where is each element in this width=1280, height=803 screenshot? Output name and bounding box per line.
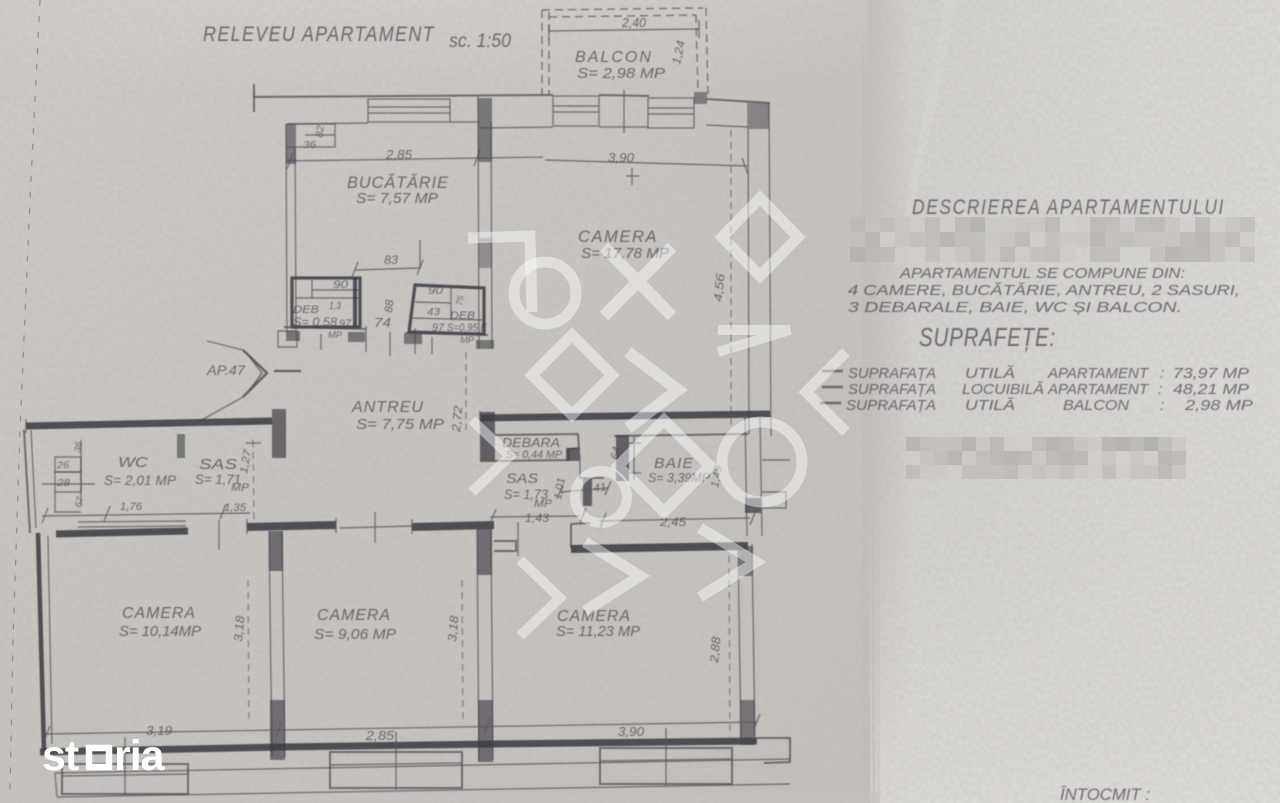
svg-text:SUPRAFAȚA: SUPRAFAȚA xyxy=(848,365,936,382)
svg-text:SUPRAFAȚA: SUPRAFAȚA xyxy=(846,397,936,414)
svg-text:1,43: 1,43 xyxy=(525,511,549,525)
svg-text:83: 83 xyxy=(384,253,398,267)
svg-text:2,98 MP: 2,98 MP xyxy=(1184,397,1253,414)
svg-text:73,97 MP: 73,97 MP xyxy=(1173,365,1249,382)
svg-text:82: 82 xyxy=(314,124,327,138)
svg-text:28: 28 xyxy=(56,478,71,489)
svg-text:43: 43 xyxy=(427,307,441,318)
svg-text:S= 10,14MP: S= 10,14MP xyxy=(119,623,201,640)
svg-text:AP.47: AP.47 xyxy=(206,362,246,378)
svg-text:UTILĂ: UTILĂ xyxy=(965,365,1015,382)
svg-text:4,56: 4,56 xyxy=(711,273,727,302)
svg-text:36: 36 xyxy=(72,441,84,454)
svg-text:ANTREU: ANTREU xyxy=(351,399,424,416)
svg-text:APARTAMENT: APARTAMENT xyxy=(1047,365,1150,382)
svg-text:74: 74 xyxy=(374,315,391,330)
svg-text:UTILĂ: UTILĂ xyxy=(965,397,1015,414)
svg-text::: : xyxy=(1160,365,1164,382)
svg-text:3 DEBARALE, BAIE, WC ȘI BALCON: 3 DEBARALE, BAIE, WC ȘI BALCON. xyxy=(848,299,1182,316)
svg-text:S= 9,06 MP: S= 9,06 MP xyxy=(314,626,396,643)
svg-text:APARTAMENT: APARTAMENT xyxy=(1047,381,1150,398)
svg-text::: : xyxy=(1160,397,1164,414)
svg-text:CAMERA: CAMERA xyxy=(122,605,196,622)
svg-text:3,18: 3,18 xyxy=(445,615,461,642)
svg-text:S= 0,58: S= 0,58 xyxy=(293,315,337,329)
svg-text:SAS: SAS xyxy=(506,470,539,486)
svg-text:26: 26 xyxy=(56,460,69,470)
svg-text:S=0,95 E: S=0,95 E xyxy=(447,322,488,334)
svg-text:S= 2,01 MP: S= 2,01 MP xyxy=(104,472,177,488)
svg-text:41: 41 xyxy=(593,481,608,495)
svg-text:2,72: 2,72 xyxy=(449,405,465,434)
svg-text:S= 7,57 MP: S= 7,57 MP xyxy=(356,190,438,207)
svg-text:APARTAMENTUL SE COMPUNE DIN:: APARTAMENTUL SE COMPUNE DIN: xyxy=(899,265,1185,282)
svg-text:2,85: 2,85 xyxy=(365,728,395,743)
svg-text:S= 7,75 MP: S= 7,75 MP xyxy=(356,416,444,433)
svg-text::: : xyxy=(1158,381,1162,398)
svg-text:SUPRAFAȚA: SUPRAFAȚA xyxy=(848,381,936,398)
svg-text:ÎNTOCMIT :: ÎNTOCMIT : xyxy=(1060,785,1150,803)
svg-text:1,76: 1,76 xyxy=(120,501,143,513)
svg-text:MP: MP xyxy=(328,330,342,340)
svg-text:48,21 MP: 48,21 MP xyxy=(1173,381,1249,398)
svg-text:ria: ria xyxy=(114,732,166,780)
svg-text:3,18: 3,18 xyxy=(231,615,247,642)
svg-text:DESCRIEREA APARTAMENTULUI: DESCRIEREA APARTAMENTULUI xyxy=(912,196,1225,219)
svg-text:CAMERA: CAMERA xyxy=(317,607,391,624)
svg-text:2,85: 2,85 xyxy=(385,147,413,162)
svg-text:1,35: 1,35 xyxy=(224,502,247,514)
svg-text:WC: WC xyxy=(118,454,148,471)
svg-text:1,3: 1,3 xyxy=(329,301,341,312)
svg-text:LOCUIBILĂ: LOCUIBILĂ xyxy=(962,381,1044,398)
svg-text:97: 97 xyxy=(339,318,352,330)
svg-text:3,90: 3,90 xyxy=(618,724,645,739)
svg-text:88: 88 xyxy=(383,298,396,313)
svg-text:36: 36 xyxy=(303,140,317,151)
svg-text:90: 90 xyxy=(428,285,444,297)
svg-text:MP: MP xyxy=(534,498,553,510)
svg-text:3,90: 3,90 xyxy=(608,150,635,165)
svg-text:4 CAMERE, BUCĂTĂRIE, ANTREU, 2: 4 CAMERE, BUCĂTĂRIE, ANTREU, 2 SASURI, xyxy=(848,282,1240,299)
svg-text:90: 90 xyxy=(333,279,349,291)
svg-text:MP: MP xyxy=(231,482,250,494)
svg-text:RELEVEU APARTAMENT: RELEVEU APARTAMENT xyxy=(203,23,436,46)
svg-text:S= 2,98 MP: S= 2,98 MP xyxy=(577,65,665,82)
svg-text:S= 11,23 MP: S= 11,23 MP xyxy=(556,623,640,640)
svg-text:BALCON: BALCON xyxy=(575,49,653,66)
svg-text:sc. 1:50: sc. 1:50 xyxy=(449,31,511,52)
svg-text:BALCON: BALCON xyxy=(1063,397,1129,414)
svg-text:2,40: 2,40 xyxy=(621,15,647,30)
svg-text:SUPRAFEȚE:: SUPRAFEȚE: xyxy=(919,322,1056,352)
svg-text:CAMERA: CAMERA xyxy=(578,227,658,246)
svg-text:st: st xyxy=(42,732,79,780)
svg-text:MP: MP xyxy=(460,335,474,345)
svg-text:DEBARA: DEBARA xyxy=(502,435,560,450)
svg-text:2,88: 2,88 xyxy=(707,636,723,665)
svg-text:97: 97 xyxy=(432,322,445,334)
svg-text:DEB: DEB xyxy=(450,310,475,322)
